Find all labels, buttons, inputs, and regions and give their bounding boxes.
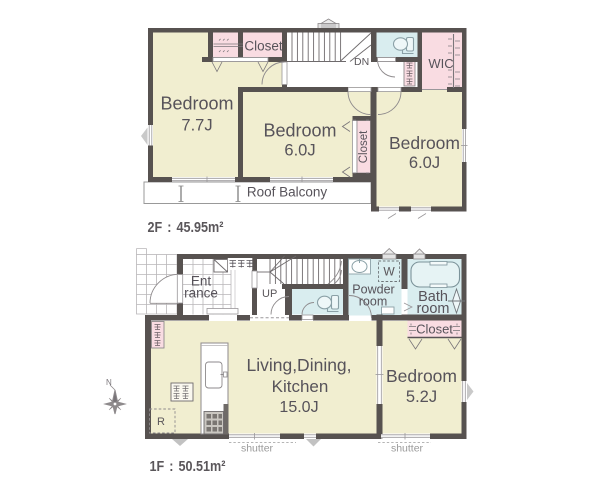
svg-text:Closet: Closet [416,322,453,337]
svg-text:WIC: WIC [428,56,453,71]
svg-text:Bedroom: Bedroom [386,366,457,386]
svg-text:N: N [106,378,112,387]
svg-text:DN: DN [354,56,369,68]
svg-text:W: W [383,265,395,279]
svg-text:Closet: Closet [358,130,370,163]
svg-text:Closet: Closet [244,39,283,54]
svg-text:Bedroom: Bedroom [160,94,233,114]
svg-text:15.0J: 15.0J [279,399,318,416]
svg-text:2F:45.95m²: 2F:45.95m² [148,218,224,235]
svg-text:R: R [157,416,165,428]
svg-text:6.0J: 6.0J [284,142,315,160]
svg-text:Bedroom: Bedroom [263,121,336,141]
svg-text:room: room [359,295,387,309]
svg-text:Living,Dining,: Living,Dining, [246,355,351,375]
svg-text:5.2J: 5.2J [406,388,437,406]
svg-text:1F:50.51m²: 1F:50.51m² [150,457,226,474]
svg-text:shutter: shutter [391,443,424,455]
svg-text:6.0J: 6.0J [409,154,440,172]
svg-text:UP: UP [262,288,277,300]
svg-text:Bedroom: Bedroom [389,133,460,153]
svg-text:rance: rance [184,286,218,301]
svg-text:shutter: shutter [241,443,274,455]
svg-text:room: room [416,301,449,317]
svg-text:Roof Balcony: Roof Balcony [247,185,328,200]
svg-text:7.7J: 7.7J [181,117,212,135]
svg-text:Kitchen: Kitchen [272,377,329,396]
